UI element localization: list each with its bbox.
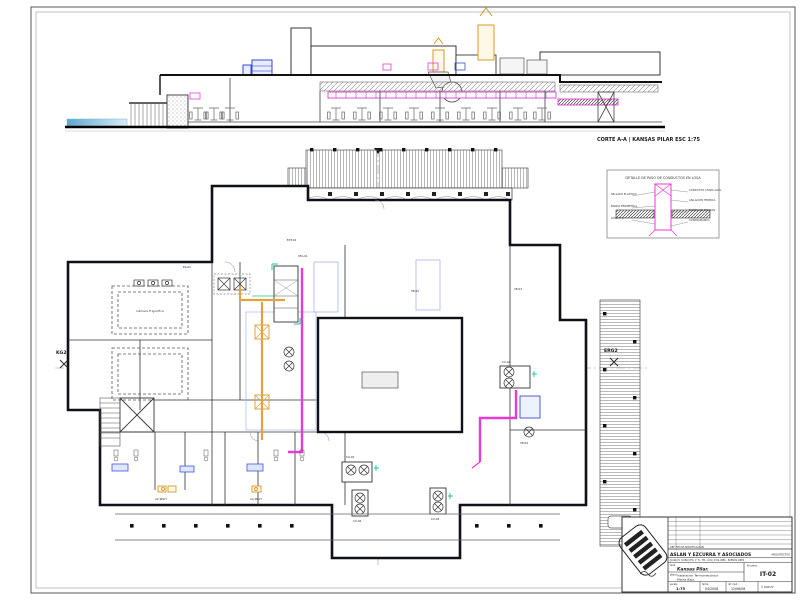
equipment-tag: EXT-01 bbox=[287, 238, 297, 242]
detail-box: DETALLE DE PASO DE CONDUCTOS EN LOSA SEL… bbox=[607, 170, 722, 238]
axis-label-right: ERG2 bbox=[604, 348, 618, 354]
axis-label-left: KG2 bbox=[56, 350, 67, 356]
firm-address: JUANA M. (CUBA) 876, 1° B - TEL. (011) 4… bbox=[669, 559, 745, 562]
detail-label: MARCO DE FIJACION bbox=[689, 208, 715, 212]
detail-label: CONDUCTO CHAPA GALV. bbox=[689, 188, 722, 192]
equipment-tag: VE-02 bbox=[411, 289, 419, 293]
plano-line2: Planta Baja. bbox=[677, 578, 695, 582]
deck-top bbox=[306, 150, 502, 188]
plan-number-label: Nº plano: bbox=[747, 565, 758, 568]
escala-label: escala: bbox=[670, 583, 678, 586]
cold-room-label: Cámara Frigorífica bbox=[136, 309, 164, 313]
rev-label: últ. mod.: bbox=[728, 583, 739, 586]
detail-label: SELLADO ELASTICO bbox=[611, 192, 637, 196]
detail-label: AISLACION TERMICA bbox=[689, 198, 716, 202]
copy-label: © COPIA N° bbox=[761, 586, 774, 589]
equipment-tag: EA-01 bbox=[183, 265, 191, 269]
equipment-tag: CU-04 bbox=[502, 360, 511, 364]
title-block: REF. FECHA MODIFICACION ASLAN Y EZCURRA … bbox=[616, 517, 792, 592]
equipment-tag: AA SPLIT bbox=[155, 497, 167, 501]
plan-number: IT-02 bbox=[760, 571, 776, 578]
detail-label: BANDA PERIMETRAL bbox=[611, 204, 638, 208]
equipment-tag: CU-03 bbox=[431, 517, 440, 521]
revision-header: REF. FECHA MODIFICACION bbox=[670, 545, 704, 549]
drawing-sheet: CORTE A-A | KANSAS PILAR ESC 1:75 DETALL… bbox=[0, 0, 800, 600]
section-caption: CORTE A-A | KANSAS PILAR ESC 1:75 bbox=[597, 137, 701, 143]
equipment-tag: AA SPLIT bbox=[250, 497, 262, 501]
obra-label: obra: bbox=[670, 564, 676, 567]
escala-value: 1:75 bbox=[676, 587, 685, 591]
detail-label: CONTRAMARCO bbox=[689, 218, 709, 222]
detail-title: DETALLE DE PASO DE CONDUCTOS EN LOSA bbox=[625, 176, 701, 180]
firm-name: ASLAN Y EZCURRA Y ASOCIADOS bbox=[670, 552, 751, 558]
equipment-tag: VE-03 bbox=[514, 287, 522, 291]
equipment-tag: CU-02 bbox=[353, 519, 362, 523]
drawing-canvas: CORTE A-A | KANSAS PILAR ESC 1:75 DETALL… bbox=[0, 0, 800, 600]
firm-role: ARQUITECTOS bbox=[771, 553, 790, 557]
equipment-tag: UTA-01 bbox=[298, 254, 308, 258]
deck-right bbox=[600, 300, 640, 546]
obra-value: Kansas Pilar. bbox=[677, 567, 709, 573]
rev-value: 12/06/08 bbox=[731, 587, 745, 591]
equipment-tag: CU-01 bbox=[346, 455, 355, 459]
fecha-value: 04/2008 bbox=[705, 587, 718, 591]
equipment-tag: VE-04 bbox=[520, 441, 528, 445]
fecha-label: fecha: bbox=[702, 583, 709, 586]
detail-label: LOSA H°A° bbox=[611, 216, 626, 220]
